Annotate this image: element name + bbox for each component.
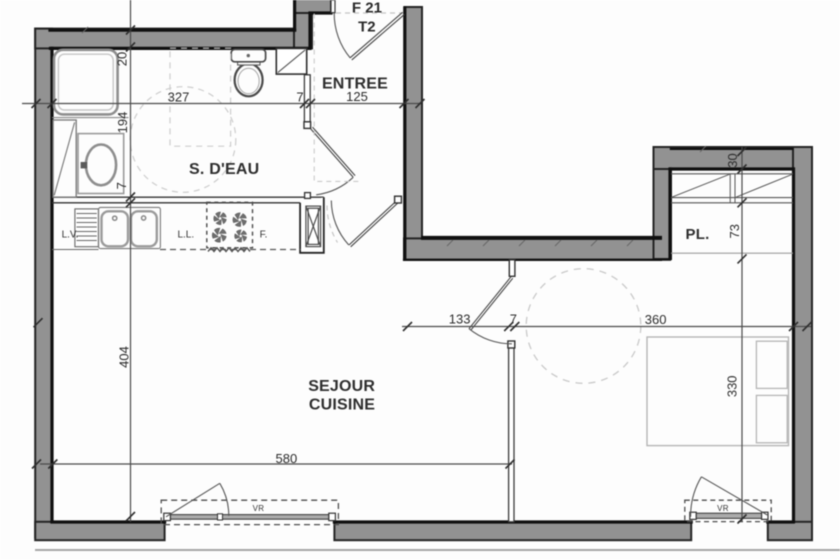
- svg-text:PL.: PL.: [686, 226, 710, 243]
- svg-text:L.L.: L.L.: [177, 230, 194, 241]
- svg-text:194: 194: [115, 112, 130, 134]
- svg-text:T2: T2: [358, 18, 376, 35]
- svg-text:73: 73: [727, 224, 742, 238]
- svg-text:133: 133: [449, 312, 471, 327]
- svg-text:CUISINE: CUISINE: [309, 396, 375, 413]
- svg-text:360: 360: [645, 312, 667, 327]
- svg-text:F.: F.: [260, 230, 268, 241]
- svg-text:7: 7: [296, 89, 303, 104]
- svg-text:327: 327: [168, 89, 190, 104]
- svg-text:30: 30: [725, 153, 740, 167]
- svg-text:S. D'EAU: S. D'EAU: [189, 161, 259, 178]
- svg-text:SEJOUR: SEJOUR: [308, 378, 375, 395]
- svg-text:F 21: F 21: [352, 0, 382, 16]
- svg-text:404: 404: [117, 346, 132, 368]
- svg-text:ENTREE: ENTREE: [322, 75, 388, 92]
- svg-text:330: 330: [725, 375, 740, 397]
- svg-text:7: 7: [114, 182, 129, 189]
- svg-text:580: 580: [276, 451, 298, 466]
- svg-text:VR: VR: [253, 504, 265, 513]
- svg-text:VR: VR: [717, 504, 729, 513]
- svg-text:7: 7: [510, 312, 517, 327]
- svg-text:20: 20: [115, 52, 130, 66]
- svg-text:L.V.: L.V.: [62, 230, 79, 241]
